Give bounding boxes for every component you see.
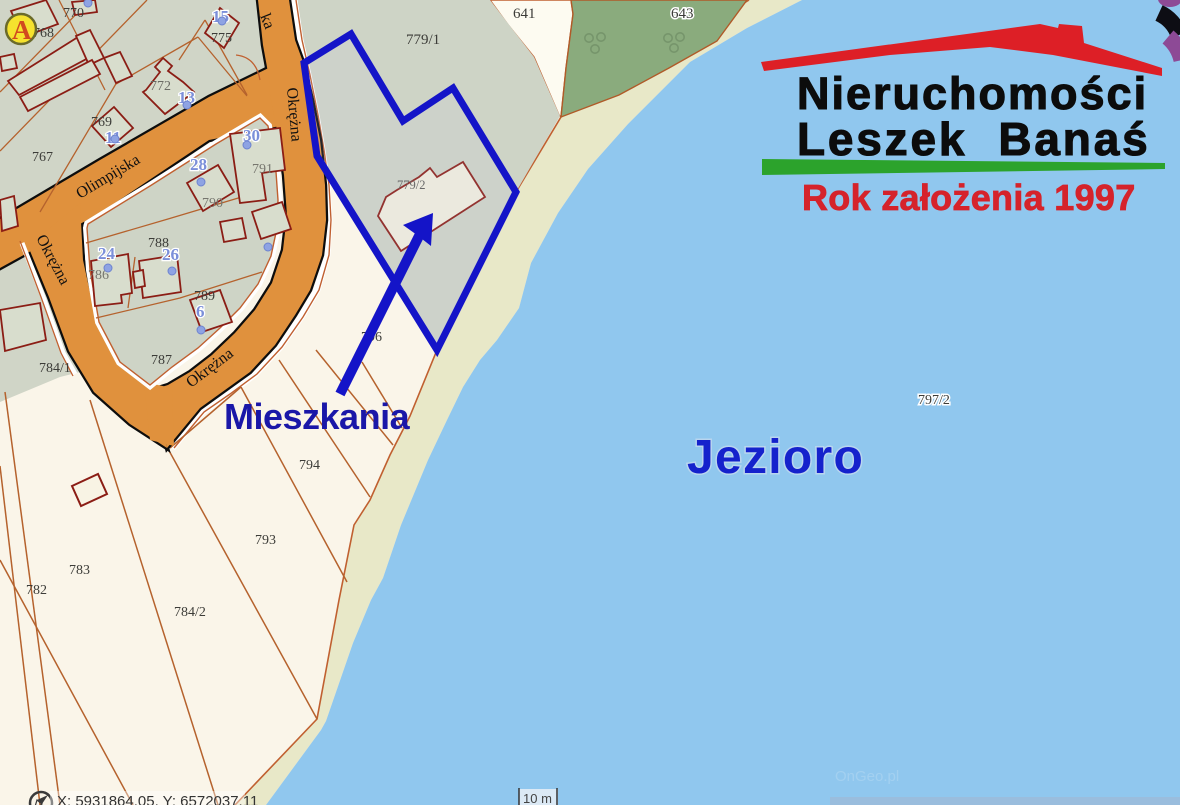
svg-text:791: 791: [252, 162, 273, 177]
svg-text:643: 643: [671, 6, 694, 22]
svg-text:779/1: 779/1: [406, 32, 440, 48]
svg-text:797/2: 797/2: [918, 393, 950, 408]
svg-text:794: 794: [299, 458, 320, 473]
svg-text:641: 641: [513, 6, 536, 22]
svg-text:784/2: 784/2: [174, 605, 206, 620]
svg-text:782: 782: [26, 583, 47, 598]
svg-text:26: 26: [162, 245, 179, 264]
svg-text:793: 793: [255, 533, 276, 548]
svg-text:767: 767: [32, 150, 53, 165]
svg-text:28: 28: [190, 155, 207, 174]
svg-text:787: 787: [151, 353, 172, 368]
svg-text:775: 775: [211, 31, 232, 46]
svg-text:OnGeo.pl: OnGeo.pl: [835, 768, 899, 785]
svg-text:A: A: [12, 15, 32, 45]
svg-text:6: 6: [196, 302, 205, 321]
svg-text:Nieruchomości: Nieruchomości: [797, 68, 1148, 119]
svg-text:790: 790: [202, 196, 223, 211]
svg-text:783: 783: [69, 563, 90, 578]
svg-text:772: 772: [150, 79, 171, 94]
svg-text:Rok założenia 1997: Rok założenia 1997: [802, 177, 1136, 218]
svg-text:784/1: 784/1: [39, 361, 71, 376]
svg-text:770: 770: [63, 6, 84, 21]
svg-text:24: 24: [98, 244, 116, 263]
svg-text:10 m: 10 m: [523, 791, 552, 805]
svg-text:X: 5931864.05, Y: 6572037.11: X: 5931864.05, Y: 6572037.11: [57, 793, 258, 805]
svg-text:Jezioro: Jezioro: [687, 431, 864, 484]
svg-text:Mieszkania: Mieszkania: [224, 396, 411, 437]
svg-text:Leszek Banaś: Leszek Banaś: [797, 113, 1150, 165]
